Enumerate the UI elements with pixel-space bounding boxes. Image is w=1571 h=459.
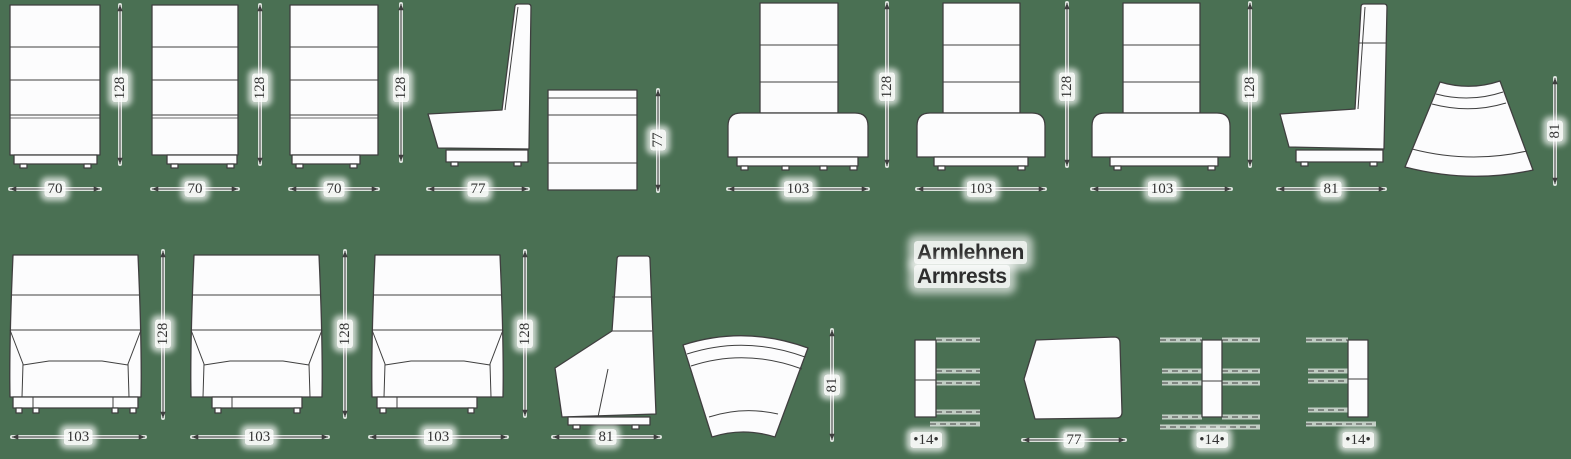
figure-bench-77 — [548, 90, 637, 190]
dim-label-height: 128 — [1242, 74, 1258, 103]
figure-side-77 — [428, 4, 531, 166]
figure-front-70-a — [10, 5, 100, 168]
dim-label-width: 103 — [64, 429, 93, 445]
dim-label-height: 128 — [155, 320, 171, 349]
technical-drawing-canvas — [0, 0, 1571, 459]
figure-front-103-a — [728, 3, 868, 170]
dim-label-height: 81 — [1547, 121, 1563, 142]
dim-label-width: 103 — [424, 429, 453, 445]
dim-label-width: 81 — [1321, 181, 1342, 197]
dim-label-height: 81 — [824, 375, 840, 396]
figure-front-70-c — [290, 5, 378, 168]
dim-label-width: 81 — [596, 429, 617, 445]
figure-front-103-c — [1092, 3, 1230, 170]
figure-armchair-103-c — [372, 255, 504, 413]
figure-curved-top-a — [1405, 81, 1533, 176]
figure-armrest-front-c — [1306, 340, 1376, 424]
figure-armrest-front-a — [915, 340, 980, 424]
dim-label-width: •14• — [1196, 432, 1228, 448]
dim-label-width: 70 — [45, 181, 66, 197]
technical-drawing-page: 70 128 70 128 70 128 77 77 103 128 103 1… — [0, 0, 1571, 459]
dim-label-width: 103 — [784, 181, 813, 197]
section-heading-en: Armrests — [914, 265, 1010, 288]
figure-armchair-side-81 — [555, 256, 656, 429]
dim-label-height: 128 — [252, 74, 268, 103]
dim-label-width: 103 — [967, 181, 996, 197]
dim-label-height: 128 — [879, 73, 895, 102]
figure-armrest-front-b — [1160, 340, 1260, 427]
section-heading-de: Armlehnen — [914, 241, 1027, 264]
dim-label-width: 103 — [1148, 181, 1177, 197]
dim-label-width: •14• — [910, 432, 942, 448]
figure-armrest-side-77 — [1024, 337, 1122, 419]
dim-label-height: 77 — [650, 130, 666, 151]
figure-armchair-103-a — [10, 255, 142, 413]
dim-label-width: 77 — [468, 181, 489, 197]
figure-armchair-103-b — [191, 255, 323, 413]
figure-side-81-top — [1280, 4, 1387, 166]
figure-front-70-b — [152, 5, 238, 168]
dim-label-height: 128 — [393, 74, 409, 103]
dim-label-width: 70 — [185, 181, 206, 197]
dim-label-width: 77 — [1064, 432, 1085, 448]
dim-label-width: •14• — [1342, 432, 1374, 448]
dim-label-width: 103 — [245, 429, 274, 445]
dim-label-height: 128 — [112, 74, 128, 103]
dim-label-height: 128 — [1059, 73, 1075, 102]
figure-front-103-b — [917, 3, 1045, 170]
dim-label-width: 70 — [324, 181, 345, 197]
figure-curved-top-b — [683, 336, 808, 437]
dim-label-height: 128 — [337, 320, 353, 349]
dim-label-height: 128 — [517, 320, 533, 349]
